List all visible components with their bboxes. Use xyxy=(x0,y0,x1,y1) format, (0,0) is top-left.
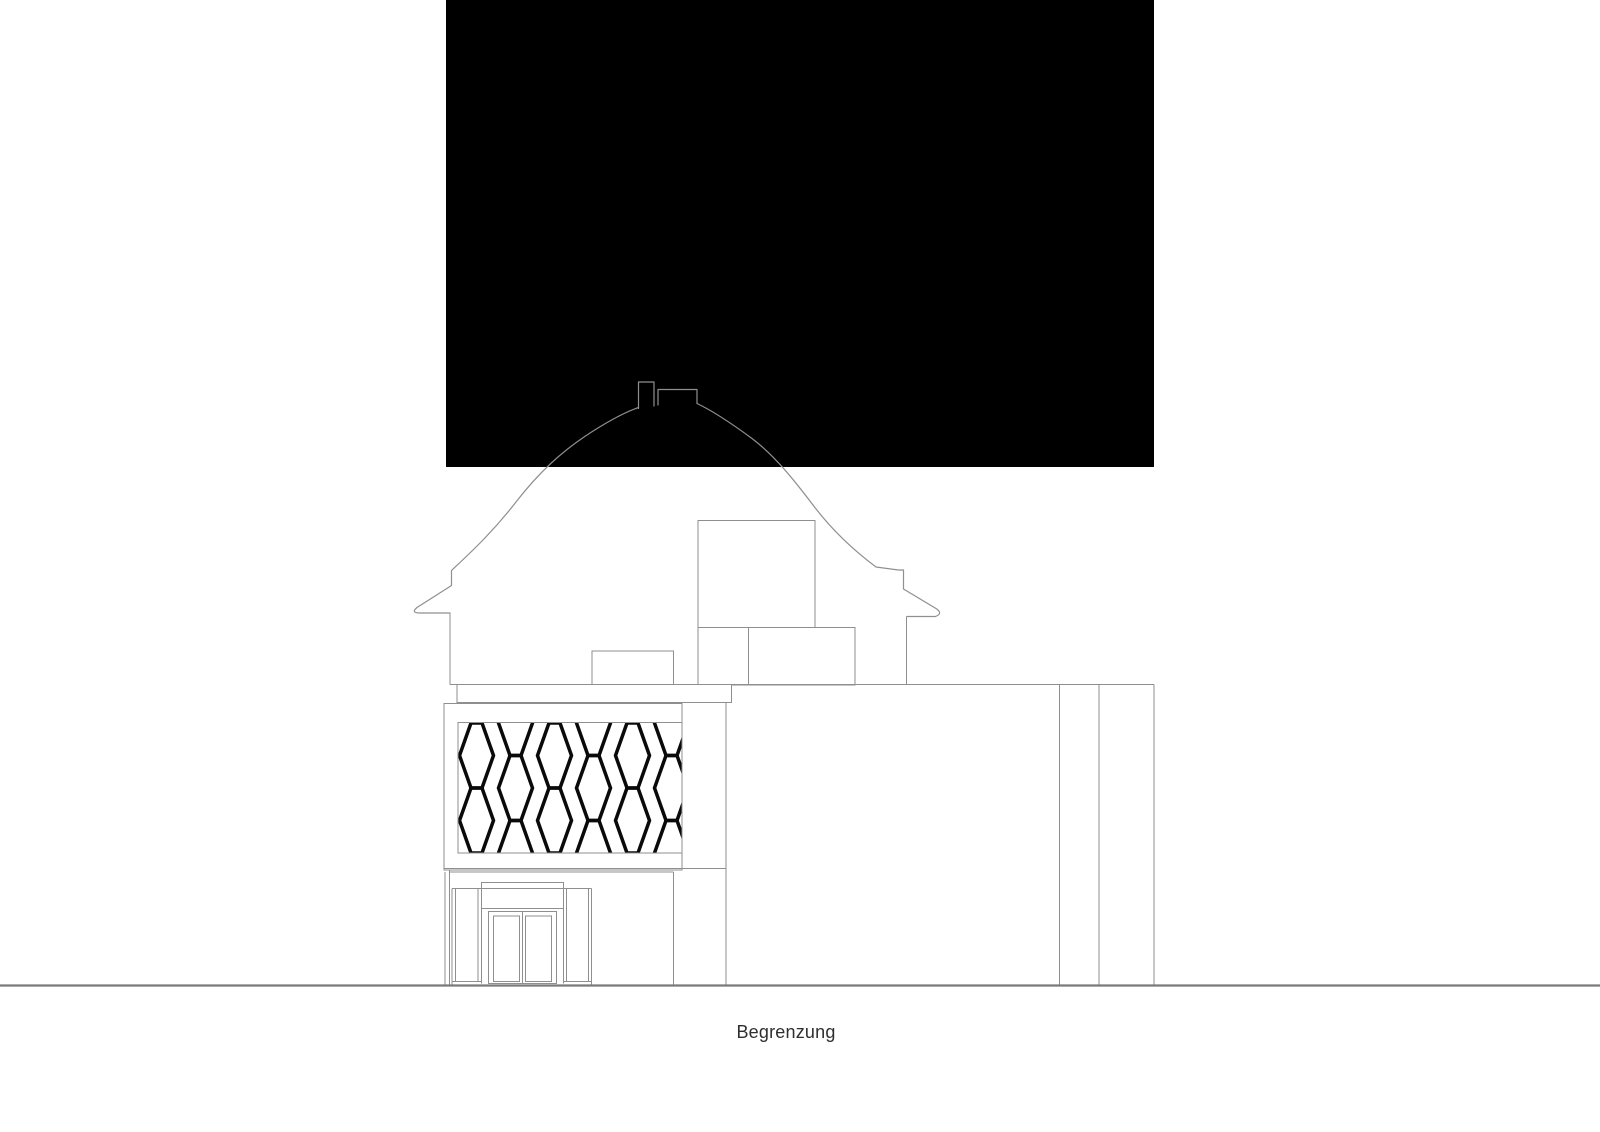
drawing-caption: Begrenzung xyxy=(0,1022,1572,1043)
rooftop-volumes xyxy=(592,521,855,686)
rooftop-box-left xyxy=(592,651,674,685)
door-leaf-right-panel xyxy=(526,916,552,982)
elevation-drawing: Begrenzung xyxy=(0,0,1600,1132)
balcony-screen xyxy=(444,691,689,886)
boundary-mask-rectangle xyxy=(446,0,1154,467)
elevation-canvas xyxy=(0,0,1600,1132)
parapet-band xyxy=(457,685,732,703)
door-header xyxy=(482,883,564,889)
entrance xyxy=(452,883,592,986)
dormer-box-large xyxy=(698,521,815,628)
dormer-box-lower-right xyxy=(749,628,856,686)
door-leaf-left-panel xyxy=(494,916,520,982)
dormer-box-lower-left xyxy=(698,628,749,686)
